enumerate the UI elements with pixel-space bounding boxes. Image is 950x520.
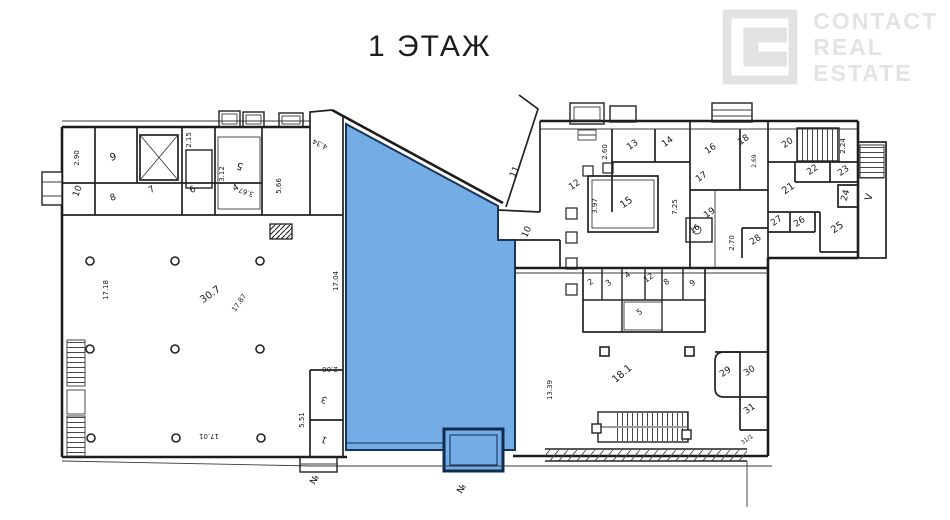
plan-label: 16 xyxy=(703,142,718,157)
plan-label: 6 xyxy=(188,184,198,196)
plan-label: 13.39 xyxy=(546,380,554,400)
staircase-top-right xyxy=(797,128,839,161)
plan-label: 17.04 xyxy=(332,270,340,291)
plan-label: 12 xyxy=(567,178,582,193)
plan-label: 7 xyxy=(147,185,157,197)
floor-plan-drawing: 2.9092.153.1253.675.661087644.3417.0417.… xyxy=(0,0,950,520)
plan-label: 22 xyxy=(805,163,820,178)
plan-label: 2 xyxy=(586,277,595,287)
plan-label: 2.90 xyxy=(73,150,81,166)
ramp-bottom xyxy=(545,449,747,461)
right-wing-walls xyxy=(498,103,886,507)
plan-label: 8 xyxy=(662,277,671,287)
plan-label: 30.7 xyxy=(198,284,223,306)
plan-label: 17 xyxy=(694,170,709,185)
plan-label: 20 xyxy=(780,136,795,151)
floor-plan-page: 1 ЭТАЖ CONTACT REAL ESTATE xyxy=(0,0,950,520)
plan-label: 10 xyxy=(520,225,534,240)
plan-label: 10 xyxy=(71,184,84,198)
plan-label: 3 xyxy=(604,278,613,288)
plan-label: 23 xyxy=(836,164,851,179)
plan-label: 18 xyxy=(736,133,751,148)
plan-label: 2.15 xyxy=(185,132,193,148)
plan-label: 5 xyxy=(635,307,644,317)
plan-label: 31/1 xyxy=(740,433,755,447)
plan-label: 2.06 xyxy=(322,365,338,373)
plan-label: 2.69 xyxy=(751,154,758,168)
plan-label: 3.67 xyxy=(238,185,255,198)
plan-label: 3 xyxy=(320,393,329,404)
plan-label: 3.12 xyxy=(218,166,226,182)
plan-label: 17.01 xyxy=(199,432,219,440)
plan-label: 31 xyxy=(742,402,757,417)
plan-label: 9 xyxy=(688,278,697,288)
plan-label: 5.66 xyxy=(275,178,283,194)
plan-label: № xyxy=(309,473,322,486)
plan-label: 13 xyxy=(625,138,640,153)
highlighted-area[interactable] xyxy=(346,124,515,450)
plan-label: 25 xyxy=(829,220,846,236)
plan-label: № xyxy=(456,482,469,495)
highlighted-area-group xyxy=(346,124,515,471)
plan-label: 5.51 xyxy=(298,412,306,428)
plan-label: 2.60 xyxy=(601,144,609,160)
plan-label: 28 xyxy=(748,233,763,248)
plan-label: 2.24 xyxy=(839,138,847,154)
plan-label: 2.70 xyxy=(728,235,736,251)
plan-label: 30 xyxy=(742,364,757,379)
columns-right-hall xyxy=(600,347,694,356)
plan-label: 21 xyxy=(780,181,797,197)
plan-label: 11 xyxy=(508,165,522,180)
plan-label: 3.97 xyxy=(591,198,599,214)
plan-label: 24 xyxy=(840,188,853,202)
plan-label: 4 xyxy=(623,270,632,280)
shaft-box xyxy=(270,224,292,239)
plan-label: 4.34 xyxy=(311,137,329,151)
plan-label: 17.18 xyxy=(102,280,110,300)
plan-label: 17.87 xyxy=(230,292,248,313)
plan-label: 18.1 xyxy=(610,363,634,386)
entrance-steps xyxy=(300,457,337,472)
external-stair xyxy=(860,145,884,178)
plan-label: 5 xyxy=(235,159,245,172)
plan-label: V xyxy=(863,192,875,202)
radiator-strip xyxy=(67,416,85,456)
plan-label: 1 xyxy=(320,433,329,444)
staircase-bottom xyxy=(592,412,691,442)
plan-label: 27 xyxy=(769,214,784,229)
plan-label: 26 xyxy=(792,215,807,230)
plan-label: 29 xyxy=(718,365,733,380)
columns-left-hall xyxy=(86,257,265,442)
plan-label: 7.25 xyxy=(671,199,679,215)
radiator-strip xyxy=(67,340,85,386)
plan-label: 8 xyxy=(109,192,118,203)
plan-label: 14 xyxy=(660,135,675,150)
plan-label: 15 xyxy=(618,195,635,211)
left-balcony xyxy=(42,172,62,205)
plan-label: 9 xyxy=(109,151,118,163)
